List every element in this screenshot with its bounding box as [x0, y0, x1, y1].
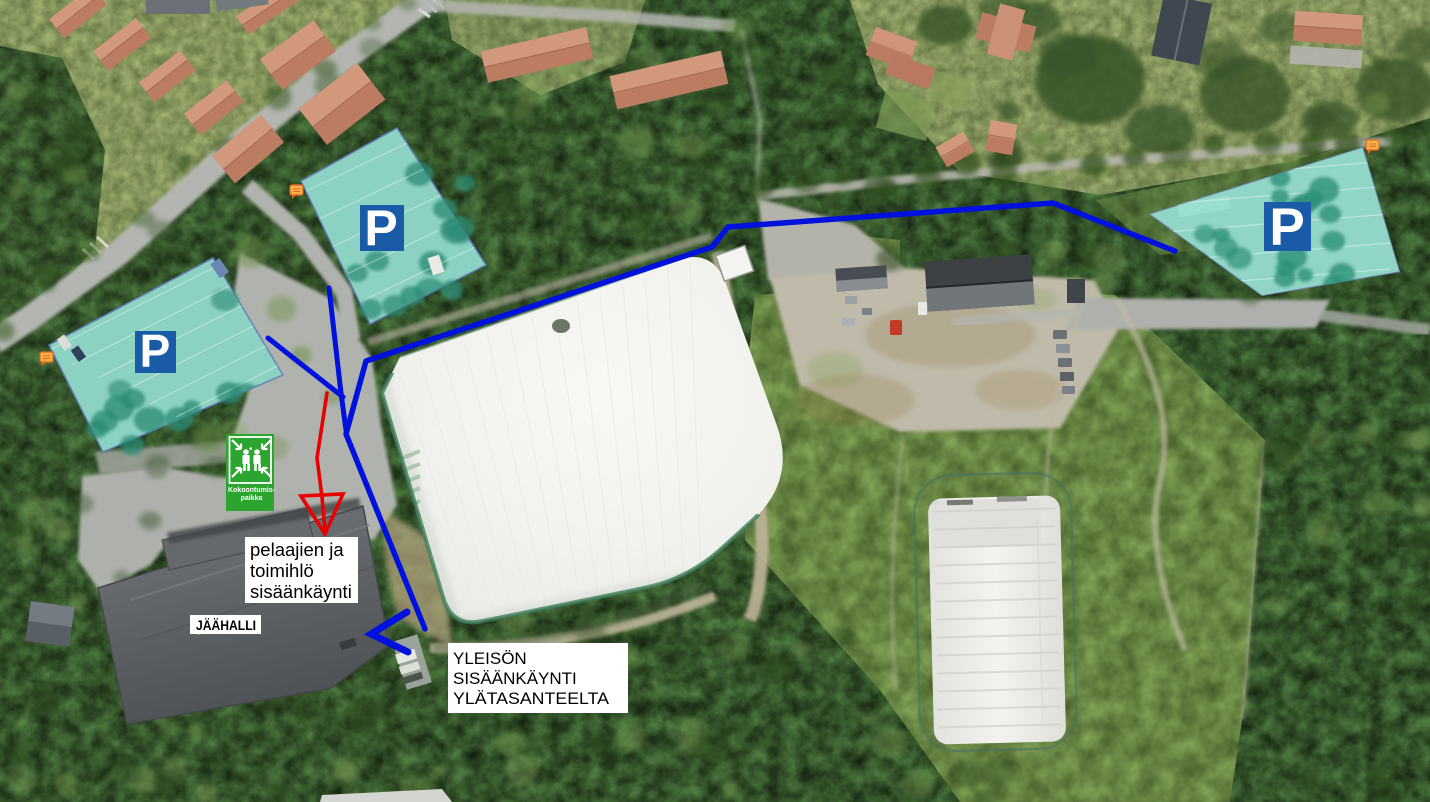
svg-text:SISÄÄNKÄYNTI: SISÄÄNKÄYNTI: [453, 669, 577, 688]
svg-text:YLÄTASANTEELTA: YLÄTASANTEELTA: [453, 689, 610, 708]
svg-text:toimihlö: toimihlö: [250, 560, 314, 581]
svg-text:P: P: [364, 200, 397, 256]
svg-text:YLEISÖN: YLEISÖN: [453, 649, 527, 668]
svg-text:pelaajien ja: pelaajien ja: [250, 539, 344, 560]
svg-text:P: P: [140, 325, 171, 377]
svg-text:sisäänkäynti: sisäänkäynti: [250, 581, 352, 602]
svg-text:P: P: [1269, 198, 1304, 257]
svg-text:Kokoontumis-: Kokoontumis-: [228, 487, 276, 494]
svg-text:paikka: paikka: [241, 495, 263, 502]
svg-text:JÄÄHALLI: JÄÄHALLI: [196, 617, 256, 633]
